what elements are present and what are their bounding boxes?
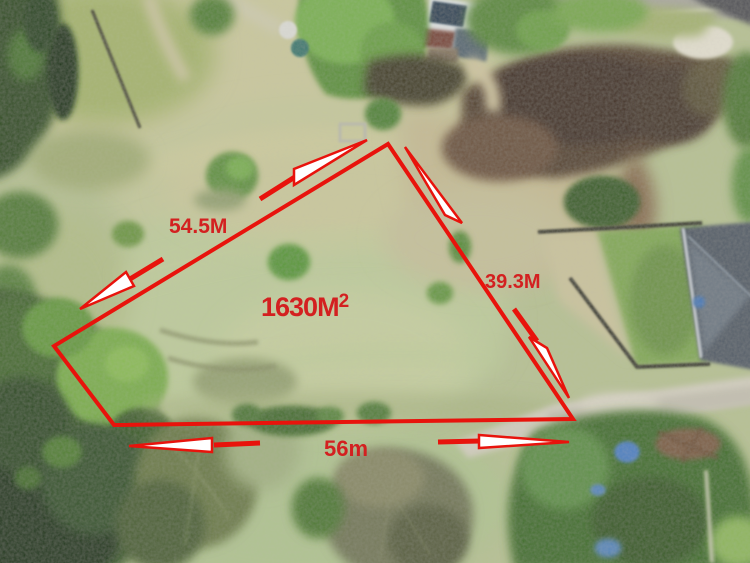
svg-text:1630M2: 1630M2 xyxy=(261,291,349,322)
svg-text:39.3M: 39.3M xyxy=(485,271,541,293)
svg-text:54.5M: 54.5M xyxy=(169,215,227,238)
svg-text:56m: 56m xyxy=(324,436,368,461)
